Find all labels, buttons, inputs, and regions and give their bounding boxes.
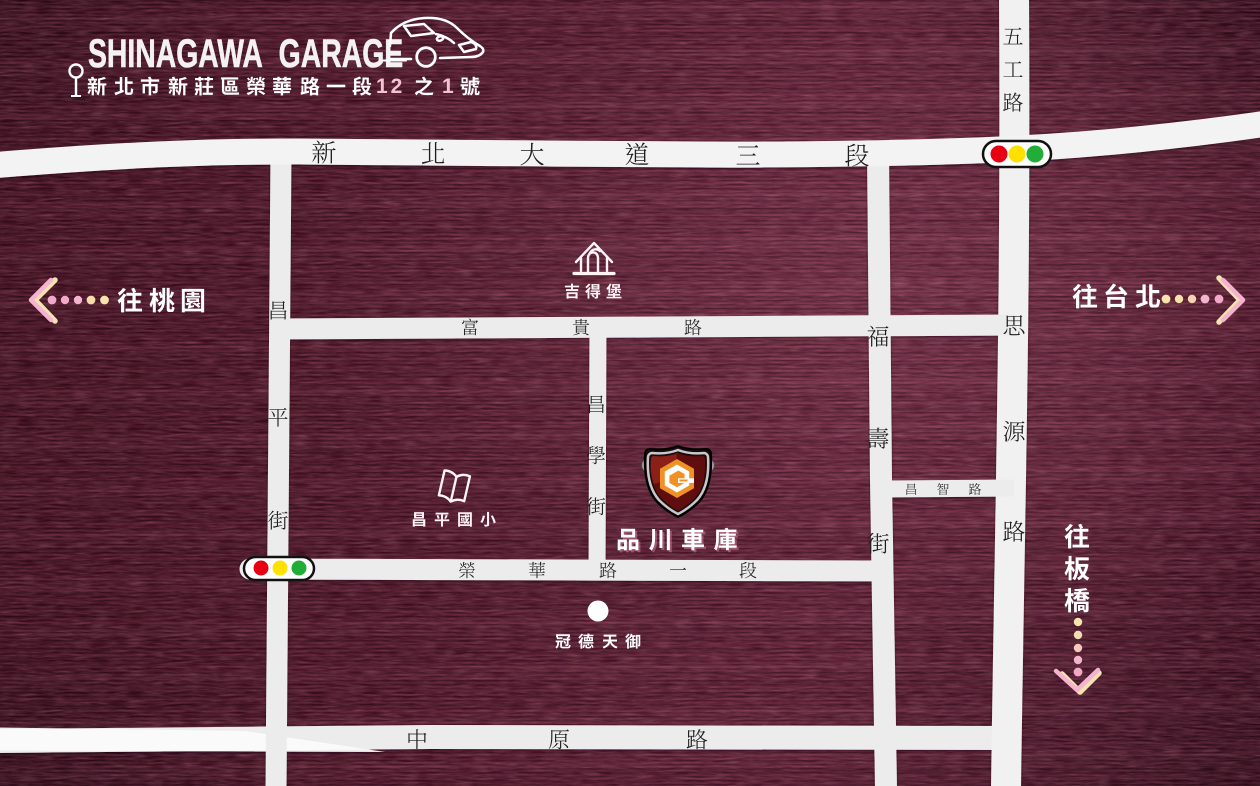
- svg-text:12: 12: [376, 75, 405, 98]
- svg-text:SHINAGAWA GARAGE: SHINAGAWA GARAGE: [88, 31, 403, 76]
- svg-text:1: 1: [442, 75, 454, 98]
